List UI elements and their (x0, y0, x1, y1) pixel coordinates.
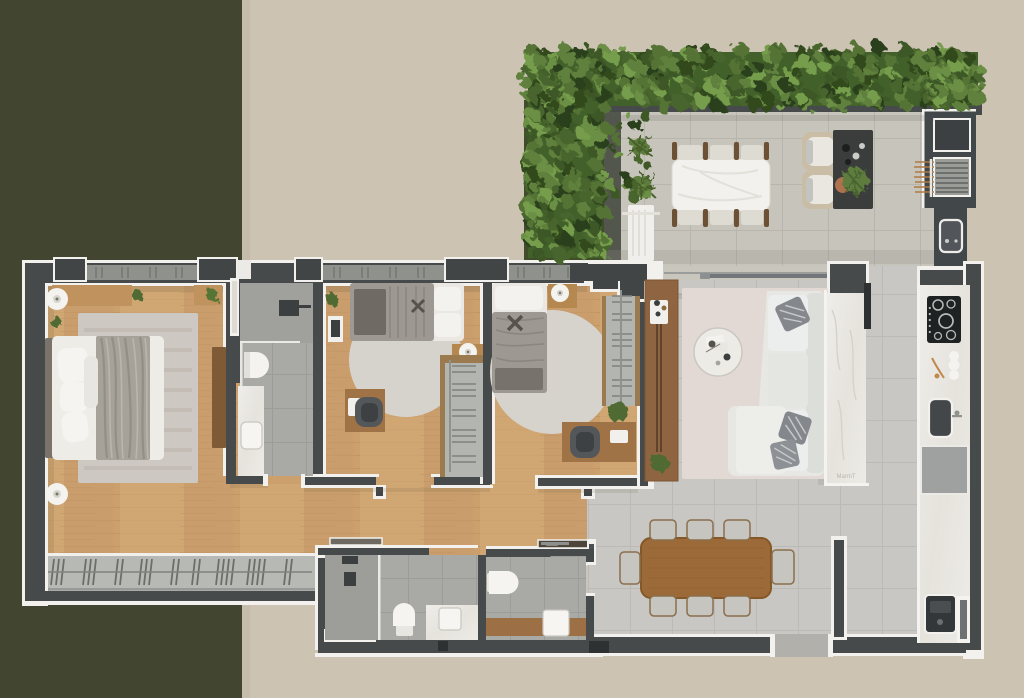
svg-text:MarmT: MarmT (837, 474, 856, 480)
